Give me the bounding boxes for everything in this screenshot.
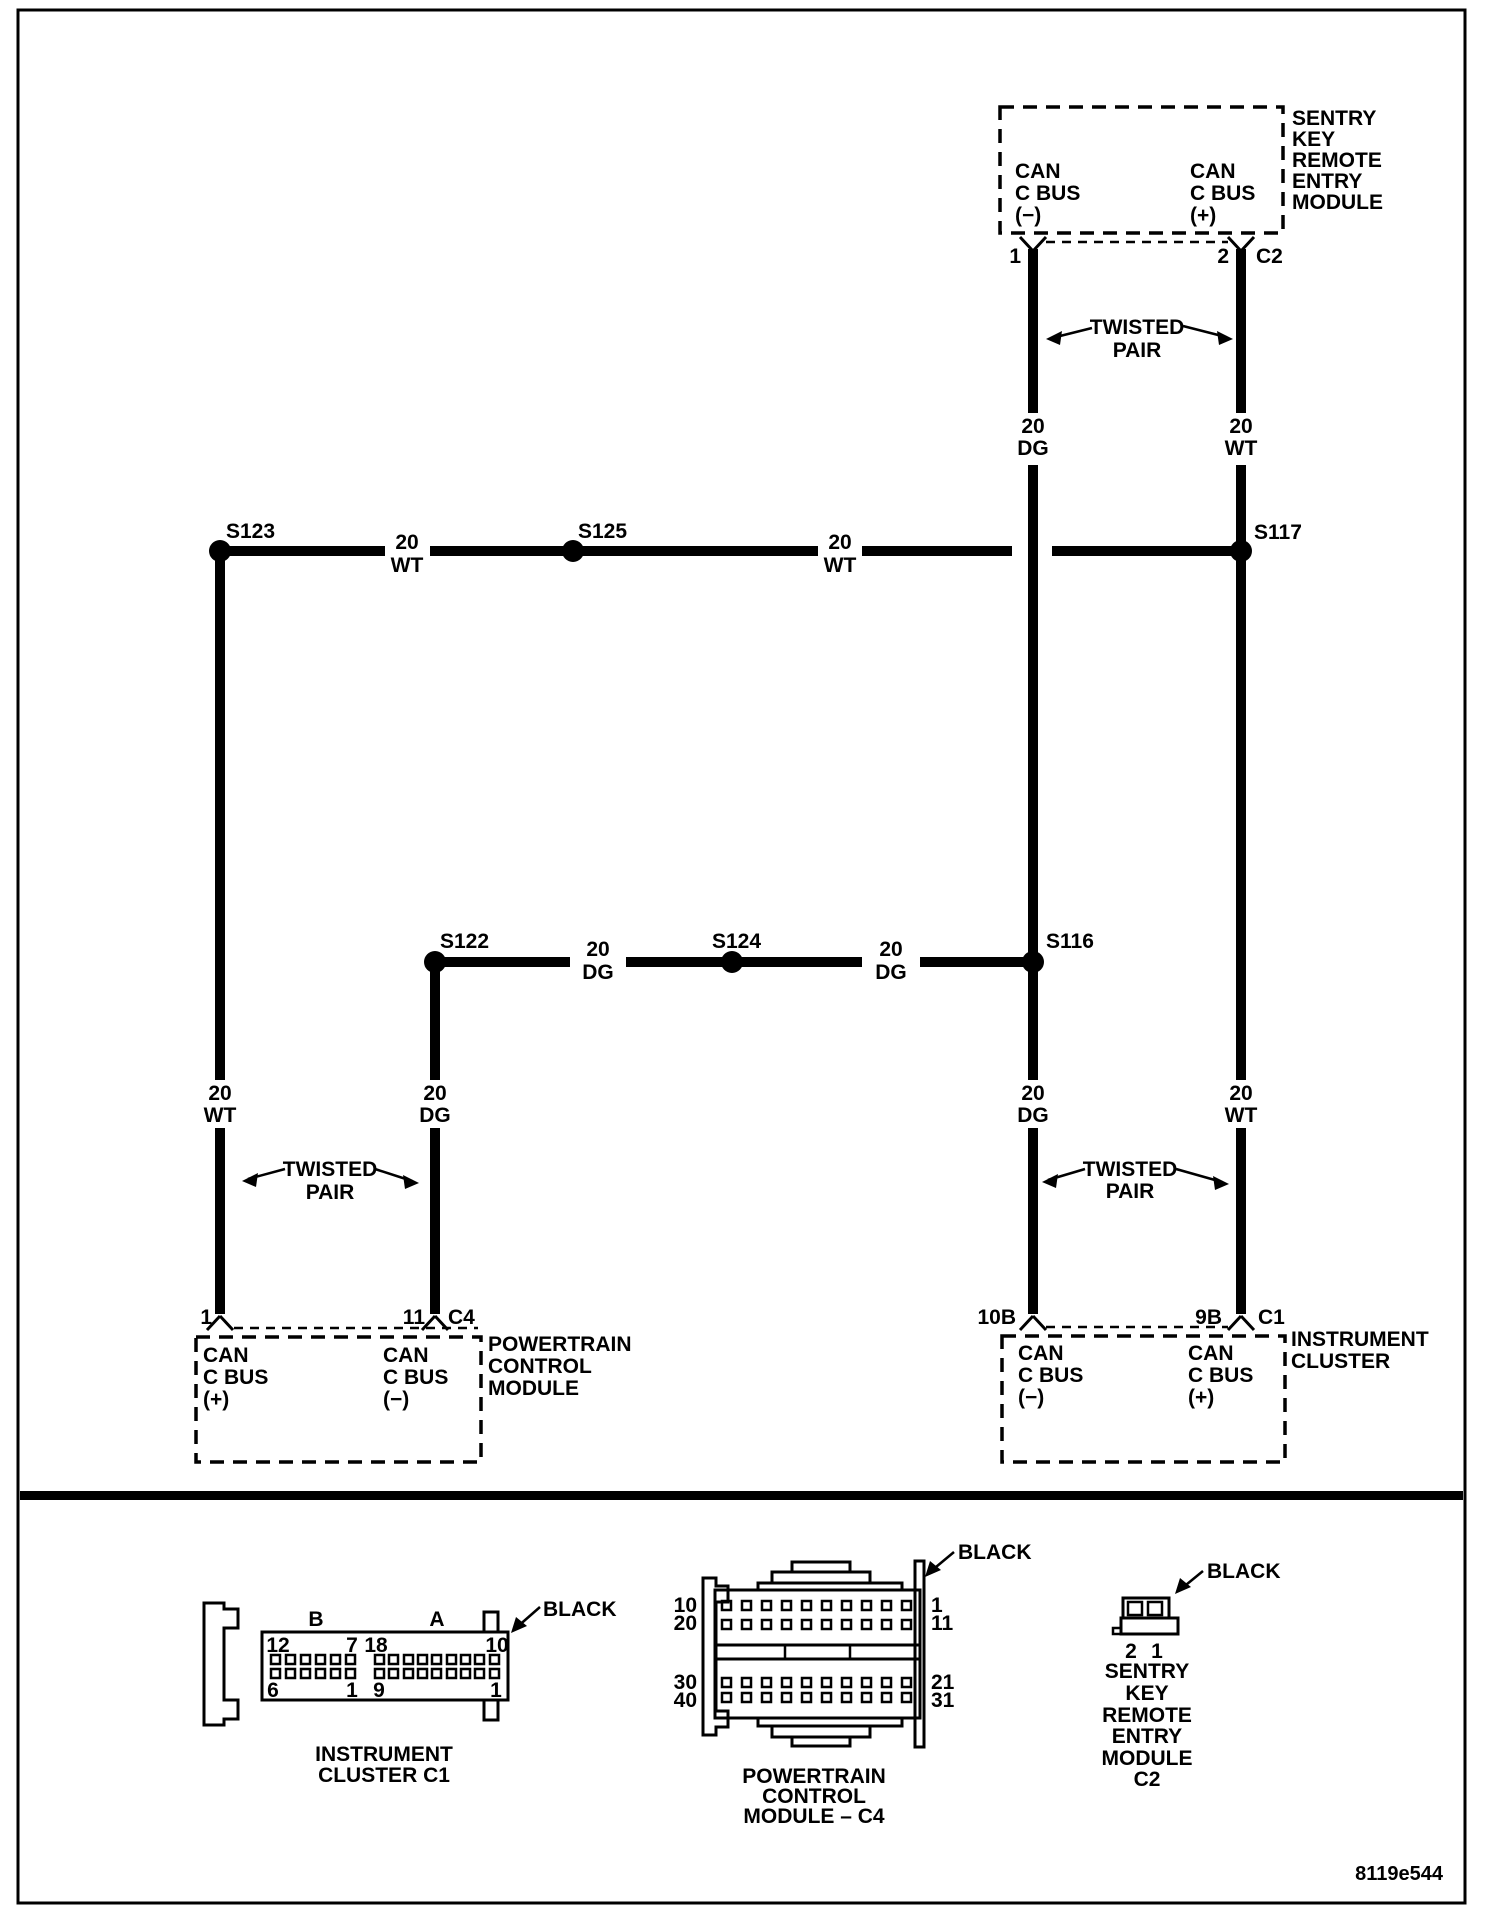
pin-cavity bbox=[461, 1669, 470, 1678]
twisted-pair-bottom-right: TWISTED PAIR bbox=[1042, 1158, 1229, 1203]
pin-cavity bbox=[842, 1678, 851, 1687]
twisted-pair-bottom-left: TWISTED PAIR bbox=[242, 1158, 419, 1204]
pin-cavity bbox=[475, 1655, 484, 1664]
pin-cavity bbox=[490, 1669, 499, 1678]
pcm-name-line3: MODULE bbox=[488, 1377, 579, 1400]
label-wt: WT bbox=[1225, 437, 1258, 460]
c4-middle-band bbox=[715, 1645, 920, 1659]
c2-color-arrowhead bbox=[1175, 1578, 1191, 1594]
pin-cavity bbox=[301, 1669, 310, 1678]
pin-cavity bbox=[842, 1693, 851, 1702]
cluster-canbus-minus-line2: C BUS bbox=[1018, 1364, 1083, 1387]
skreem-name-line3: REMOTE bbox=[1292, 149, 1382, 172]
pin-cavity bbox=[862, 1601, 871, 1610]
pin-cavity bbox=[742, 1601, 751, 1610]
skreem-canbus-plus-line1: CAN bbox=[1190, 160, 1236, 183]
cluster-name-line1: INSTRUMENT bbox=[1291, 1328, 1429, 1351]
c1-section-b-label: B bbox=[308, 1608, 323, 1631]
skreem-canbus-minus-sign: (−) bbox=[1015, 204, 1041, 227]
pcm-canbus-plus-line1: CAN bbox=[203, 1344, 249, 1367]
pin-cavity bbox=[722, 1678, 731, 1687]
label-dg: DG bbox=[419, 1104, 451, 1127]
twisted-pair-top: TWISTED PAIR bbox=[1046, 316, 1233, 362]
c4-bottom-tab-mid bbox=[772, 1726, 870, 1737]
pin-cavity bbox=[742, 1678, 751, 1687]
splice-label-s117: S117 bbox=[1254, 521, 1302, 544]
pin-cavity bbox=[822, 1678, 831, 1687]
c1-caption-line2: CLUSTER C1 bbox=[318, 1764, 450, 1787]
cluster-name-line2: CLUSTER bbox=[1291, 1350, 1390, 1373]
splices: S123 S125 S117 S122 S124 S116 bbox=[209, 520, 1302, 973]
skreem-name-line2: KEY bbox=[1292, 128, 1335, 151]
pin-cavity bbox=[742, 1693, 751, 1702]
c1-pin-18: 18 bbox=[364, 1634, 388, 1657]
c2-caption-line4: ENTRY bbox=[1112, 1725, 1182, 1748]
pin-cavity bbox=[389, 1655, 398, 1664]
pin-cavity bbox=[722, 1620, 731, 1629]
label-wt: WT bbox=[391, 554, 424, 577]
c2-caption-line2: KEY bbox=[1125, 1682, 1168, 1705]
pcm-canbus-plus-line2: C BUS bbox=[203, 1366, 268, 1389]
c4-row-label-20: 20 bbox=[674, 1612, 697, 1635]
twisted-arrowhead-right bbox=[1213, 1176, 1229, 1190]
c1-color-label: BLACK bbox=[543, 1598, 617, 1621]
pin-cavity bbox=[316, 1655, 325, 1664]
pin-cavity bbox=[862, 1620, 871, 1629]
twisted-label: TWISTED bbox=[1083, 1158, 1178, 1181]
cluster-pin9b-number: 9B bbox=[1195, 1306, 1222, 1329]
pcm-canbus-minus-sign: (−) bbox=[383, 1388, 409, 1411]
pin-cavity bbox=[802, 1620, 811, 1629]
skreem-module-box: CAN C BUS (−) CAN C BUS (+) SENTRY KEY R… bbox=[1000, 107, 1383, 268]
cluster-canbus-plus-line2: C BUS bbox=[1188, 1364, 1253, 1387]
c1-pin-7: 7 bbox=[346, 1634, 358, 1657]
c2-caption-line3: REMOTE bbox=[1102, 1704, 1192, 1727]
label-wt: WT bbox=[824, 554, 857, 577]
pin-cavity bbox=[782, 1693, 791, 1702]
label-wt: WT bbox=[204, 1104, 237, 1127]
splice-label-s125: S125 bbox=[578, 520, 627, 543]
c2-caption-line1: SENTRY bbox=[1105, 1660, 1189, 1683]
pcm-module-box: 1 11 C4 CAN C BUS (+) CAN C BUS (−) POWE… bbox=[196, 1306, 632, 1462]
pin-cavity bbox=[316, 1669, 325, 1678]
pin-cavity bbox=[375, 1669, 384, 1678]
label-gauge: 20 bbox=[1021, 1082, 1044, 1105]
pin-cavity bbox=[822, 1620, 831, 1629]
pin-cavity bbox=[286, 1669, 295, 1678]
pair-label: PAIR bbox=[1113, 339, 1162, 362]
pin-cavity bbox=[882, 1620, 891, 1629]
skreem-pin2-chevron bbox=[1228, 237, 1254, 251]
c1-pin-6: 6 bbox=[267, 1679, 279, 1702]
pin-cavity bbox=[762, 1601, 771, 1610]
pcm-canbus-minus-line1: CAN bbox=[383, 1344, 429, 1367]
pin-cavity bbox=[461, 1655, 470, 1664]
c4-lower-bank bbox=[715, 1659, 920, 1718]
wiring-diagram-canvas: CAN C BUS (−) CAN C BUS (+) SENTRY KEY R… bbox=[0, 0, 1504, 1916]
splice-dot-s122 bbox=[424, 951, 446, 973]
cluster-connector-id: C1 bbox=[1258, 1306, 1285, 1329]
cluster-module-box: 10B 9B C1 CAN C BUS (−) CAN C BUS (+) IN… bbox=[977, 1306, 1428, 1462]
c2-base bbox=[1121, 1618, 1178, 1634]
cluster-canbus-plus-line1: CAN bbox=[1188, 1342, 1234, 1365]
splice-dot-s117 bbox=[1230, 540, 1252, 562]
c1-end-bracket bbox=[204, 1603, 238, 1725]
c1-section-a-label: A bbox=[429, 1608, 444, 1631]
twisted-arrowhead-right bbox=[1217, 331, 1233, 345]
pin-cavity bbox=[447, 1669, 456, 1678]
c4-top-tab-mid bbox=[772, 1572, 870, 1583]
c4-upper-bank bbox=[715, 1590, 920, 1645]
pin-cavity bbox=[762, 1620, 771, 1629]
splice-label-s124: S124 bbox=[712, 930, 761, 953]
c1-pin-grid bbox=[271, 1655, 499, 1678]
cluster-pin10b-number: 10B bbox=[977, 1306, 1016, 1329]
pin-cavity bbox=[346, 1669, 355, 1678]
splice-label-s123: S123 bbox=[226, 520, 275, 543]
c2-caption-line6: C2 bbox=[1134, 1768, 1161, 1791]
pin-cavity bbox=[389, 1669, 398, 1678]
pin-cavity bbox=[418, 1655, 427, 1664]
pin-cavity bbox=[822, 1693, 831, 1702]
pin-cavity bbox=[862, 1678, 871, 1687]
skreem-name-line1: SENTRY bbox=[1292, 107, 1376, 130]
pin-cavity bbox=[722, 1693, 731, 1702]
pin-cavity bbox=[782, 1620, 791, 1629]
c1-pin-1b: 1 bbox=[346, 1679, 358, 1702]
pcm-pin11-number: 11 bbox=[403, 1306, 426, 1329]
pcm-name-line1: POWERTRAIN bbox=[488, 1333, 632, 1356]
pin-cavity bbox=[842, 1620, 851, 1629]
c1-pin-1a: 1 bbox=[490, 1679, 502, 1702]
pin-cavity bbox=[802, 1678, 811, 1687]
c2-cavity-2 bbox=[1128, 1602, 1142, 1615]
pin-cavity bbox=[822, 1601, 831, 1610]
splice-label-s116: S116 bbox=[1046, 930, 1094, 953]
skreem-canbus-plus-sign: (+) bbox=[1190, 204, 1216, 227]
c1-pin-12: 12 bbox=[266, 1634, 289, 1657]
c4-color-label: BLACK bbox=[958, 1541, 1032, 1564]
cluster-canbus-minus-line1: CAN bbox=[1018, 1342, 1064, 1365]
connector-view-c2: 2 1 BLACK SENTRY KEY REMOTE ENTRY MODULE… bbox=[1102, 1560, 1281, 1791]
pin-cavity bbox=[432, 1669, 441, 1678]
skreem-canbus-minus-line2: C BUS bbox=[1015, 182, 1080, 205]
pin-cavity bbox=[404, 1669, 413, 1678]
pcm-canbus-minus-line2: C BUS bbox=[383, 1366, 448, 1389]
pcm-name-line2: CONTROL bbox=[488, 1355, 592, 1378]
splice-dot-s124 bbox=[721, 951, 743, 973]
c1-top-latch bbox=[484, 1612, 498, 1632]
pin-cavity bbox=[271, 1669, 280, 1678]
pin-cavity bbox=[331, 1669, 340, 1678]
twisted-arrowhead-right bbox=[403, 1175, 419, 1189]
pin-cavity bbox=[301, 1655, 310, 1664]
label-gauge: 20 bbox=[1229, 415, 1252, 438]
pin-cavity bbox=[882, 1693, 891, 1702]
label-gauge: 20 bbox=[828, 531, 851, 554]
c1-caption-line1: INSTRUMENT bbox=[315, 1743, 453, 1766]
splice-label-s122: S122 bbox=[440, 930, 489, 953]
c4-bottom-tab-small bbox=[792, 1737, 850, 1746]
pin-cavity bbox=[742, 1620, 751, 1629]
label-gauge: 20 bbox=[879, 938, 902, 961]
twisted-arrowhead-left bbox=[1046, 331, 1062, 345]
c1-pin-9: 9 bbox=[373, 1679, 385, 1702]
label-dg: DG bbox=[1017, 437, 1049, 460]
splice-dot-s123 bbox=[209, 540, 231, 562]
skreem-connector-id: C2 bbox=[1256, 245, 1283, 268]
label-wt: WT bbox=[1225, 1104, 1258, 1127]
connector-view-c4: 10 20 30 40 1 11 21 31 BLACK POWERTRAIN … bbox=[674, 1541, 1032, 1828]
pin-cavity bbox=[842, 1601, 851, 1610]
pin-cavity bbox=[404, 1655, 413, 1664]
connector-view-c1: B A 12 7 18 10 6 1 9 1 BLACK INSTRUMENT … bbox=[204, 1598, 617, 1787]
twisted-arrowhead-left bbox=[242, 1173, 258, 1187]
c4-row-label-31: 31 bbox=[931, 1689, 955, 1712]
pin-cavity bbox=[762, 1678, 771, 1687]
pair-label: PAIR bbox=[1106, 1180, 1155, 1203]
c2-caption-line5: MODULE bbox=[1102, 1747, 1193, 1770]
label-gauge: 20 bbox=[586, 938, 609, 961]
skreem-name-line5: MODULE bbox=[1292, 191, 1383, 214]
pin-cavity bbox=[802, 1601, 811, 1610]
pin-cavity bbox=[882, 1601, 891, 1610]
pin-cavity bbox=[475, 1669, 484, 1678]
pcm-pin1-number: 1 bbox=[200, 1306, 212, 1329]
pin-cavity bbox=[432, 1655, 441, 1664]
splice-dot-s116 bbox=[1022, 951, 1044, 973]
c4-caption-line3: MODULE – C4 bbox=[743, 1805, 885, 1828]
c2-side-tab bbox=[1113, 1628, 1121, 1634]
label-dg: DG bbox=[1017, 1104, 1049, 1127]
pin-cavity bbox=[902, 1678, 911, 1687]
pin-cavity bbox=[447, 1655, 456, 1664]
c2-cavity-1 bbox=[1148, 1602, 1162, 1615]
label-dg: DG bbox=[582, 961, 614, 984]
c4-pin-grid bbox=[722, 1601, 911, 1702]
label-gauge: 20 bbox=[1021, 415, 1044, 438]
skreem-pin2-number: 2 bbox=[1217, 245, 1229, 268]
skreem-canbus-minus-line1: CAN bbox=[1015, 160, 1061, 183]
twisted-label: TWISTED bbox=[1090, 316, 1185, 339]
wiring-diagram-page: CAN C BUS (−) CAN C BUS (+) SENTRY KEY R… bbox=[0, 0, 1504, 1916]
c4-row-label-11: 11 bbox=[931, 1612, 954, 1635]
twisted-arrowhead-left bbox=[1042, 1174, 1058, 1188]
skreem-canbus-plus-line2: C BUS bbox=[1190, 182, 1255, 205]
pin-cavity bbox=[418, 1669, 427, 1678]
skreem-pin1-number: 1 bbox=[1009, 245, 1021, 268]
pin-cavity bbox=[902, 1620, 911, 1629]
skreem-pin1-chevron bbox=[1020, 237, 1046, 251]
c1-pin-10: 10 bbox=[485, 1634, 508, 1657]
pcm-connector-id: C4 bbox=[448, 1306, 475, 1329]
label-dg: DG bbox=[875, 961, 907, 984]
cluster-pin9b-chevron bbox=[1228, 1316, 1254, 1330]
cluster-canbus-plus-sign: (+) bbox=[1188, 1386, 1214, 1409]
skreem-name-line4: ENTRY bbox=[1292, 170, 1362, 193]
pin-cavity bbox=[331, 1655, 340, 1664]
pair-label: PAIR bbox=[306, 1181, 355, 1204]
twisted-label: TWISTED bbox=[283, 1158, 378, 1181]
c2-color-label: BLACK bbox=[1207, 1560, 1281, 1583]
pin-cavity bbox=[902, 1693, 911, 1702]
label-gauge: 20 bbox=[395, 531, 418, 554]
wire-labels: 20 DG 20 WT 20 WT 20 WT 20 DG 20 DG 20 W… bbox=[204, 415, 1258, 1127]
splice-dot-s125 bbox=[562, 540, 584, 562]
label-gauge: 20 bbox=[208, 1082, 231, 1105]
pin-cavity bbox=[802, 1693, 811, 1702]
cluster-canbus-minus-sign: (−) bbox=[1018, 1386, 1044, 1409]
pin-cavity bbox=[782, 1601, 791, 1610]
label-gauge: 20 bbox=[1229, 1082, 1252, 1105]
section-divider bbox=[20, 1491, 1463, 1500]
pin-cavity bbox=[882, 1678, 891, 1687]
pin-cavity bbox=[902, 1601, 911, 1610]
pin-cavity bbox=[862, 1693, 871, 1702]
pcm-canbus-plus-sign: (+) bbox=[203, 1388, 229, 1411]
pin-cavity bbox=[762, 1693, 771, 1702]
cluster-pin10b-chevron bbox=[1020, 1316, 1046, 1330]
c1-bottom-latch bbox=[484, 1700, 498, 1720]
label-gauge: 20 bbox=[423, 1082, 446, 1105]
figure-number: 8119e544 bbox=[1355, 1863, 1444, 1885]
pin-cavity bbox=[782, 1678, 791, 1687]
c4-row-label-40: 40 bbox=[674, 1689, 697, 1712]
